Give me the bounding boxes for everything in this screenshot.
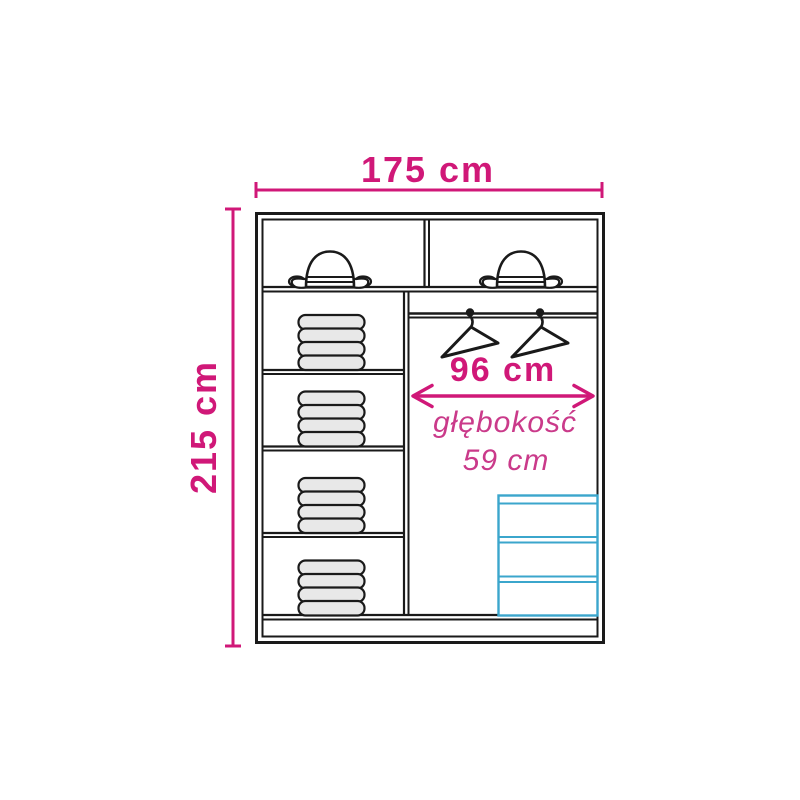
diagram-canvas <box>0 0 800 800</box>
drawer-unit-frame <box>499 496 598 616</box>
height-label: 215 cm <box>186 360 222 494</box>
clothes-stack-icon <box>299 392 365 447</box>
width-label: 175 cm <box>361 152 495 188</box>
depth-label: głębokość <box>433 408 577 438</box>
height-dimension-line <box>225 209 241 646</box>
clothes-stack-icon <box>299 315 365 370</box>
interior-width-label: 96 cm <box>450 353 556 387</box>
wardrobe-dimension-diagram: 175 cm 215 cm 96 cm głębokość 59 cm <box>0 0 800 800</box>
clothes-stack-icon <box>299 478 365 533</box>
drawer-unit-icon <box>499 496 598 616</box>
clothes-stack-icon <box>299 561 365 616</box>
depth-value-label: 59 cm <box>463 446 550 476</box>
